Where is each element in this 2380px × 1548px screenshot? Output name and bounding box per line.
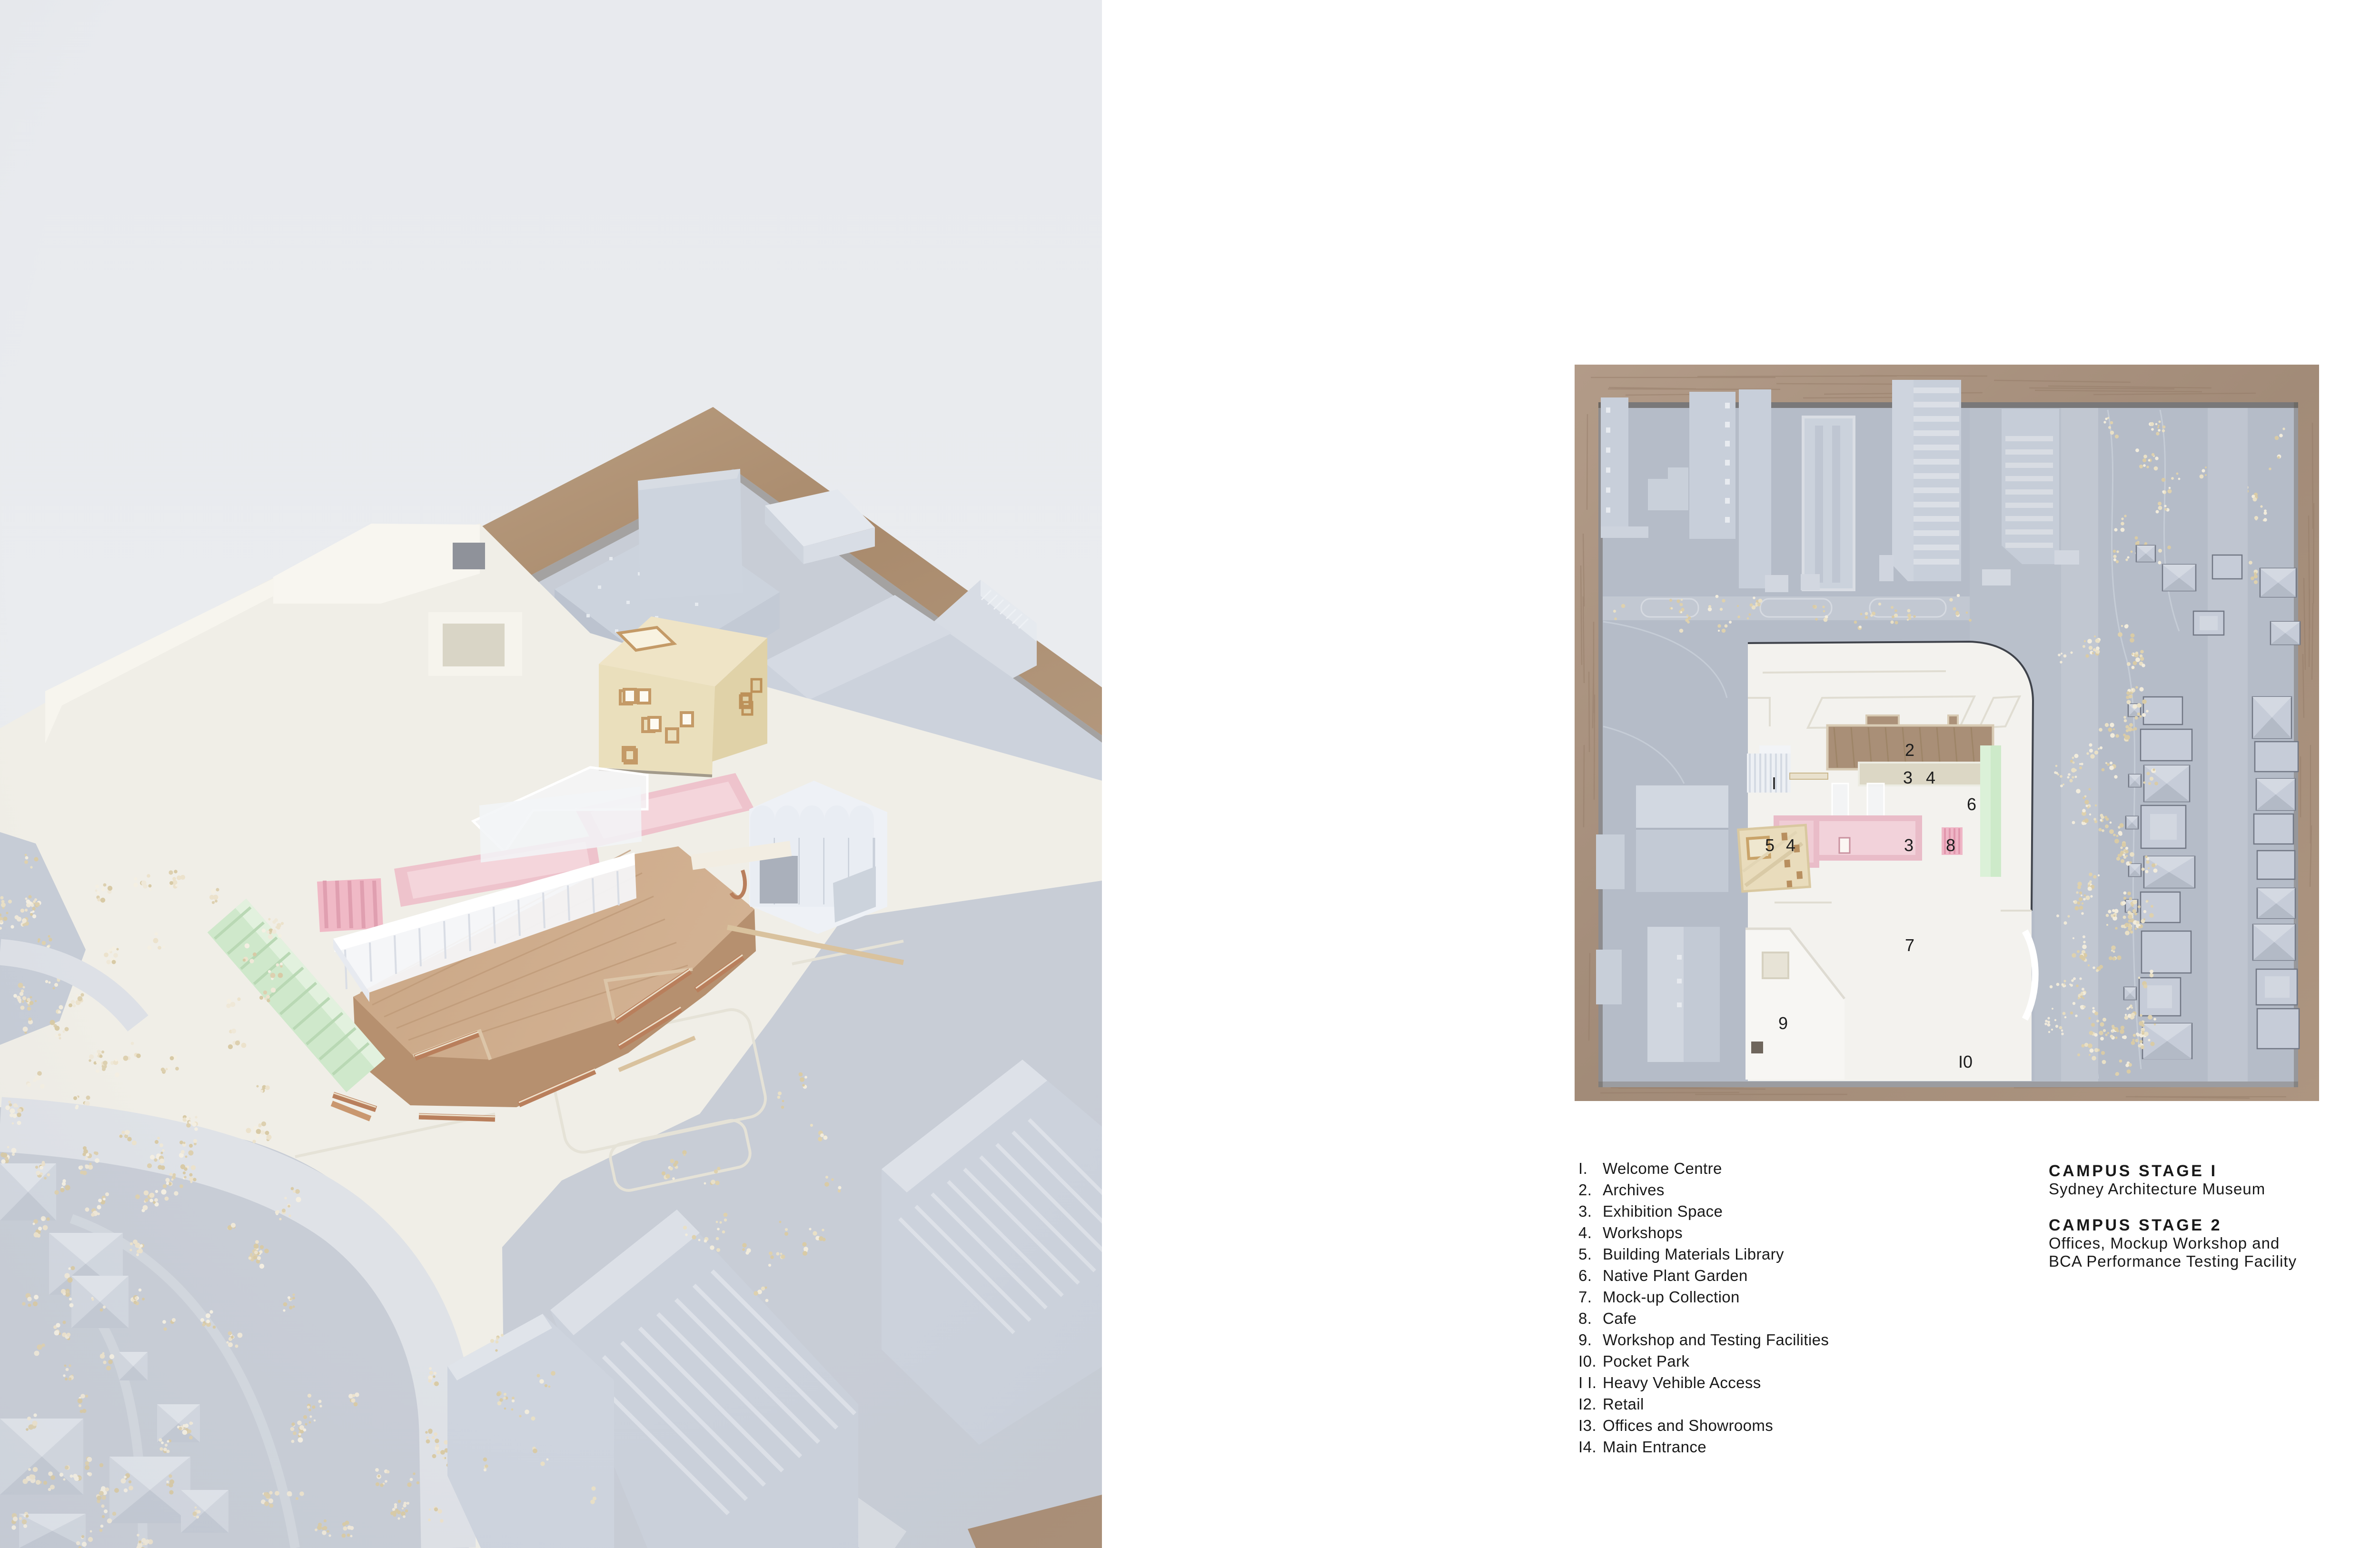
svg-text:6: 6 [1967, 794, 1976, 814]
svg-text:I0: I0 [1958, 1052, 1973, 1072]
svg-text:7: 7 [1905, 935, 1914, 955]
svg-text:4: 4 [1786, 835, 1795, 855]
svg-text:5: 5 [1765, 835, 1775, 855]
svg-text:2: 2 [1905, 740, 1914, 760]
svg-text:I: I [1772, 774, 1776, 793]
svg-text:8: 8 [1946, 835, 1955, 855]
svg-text:3: 3 [1903, 768, 1913, 787]
svg-text:9: 9 [1778, 1013, 1788, 1033]
svg-text:4: 4 [1926, 768, 1935, 787]
svg-text:3: 3 [1904, 835, 1914, 855]
